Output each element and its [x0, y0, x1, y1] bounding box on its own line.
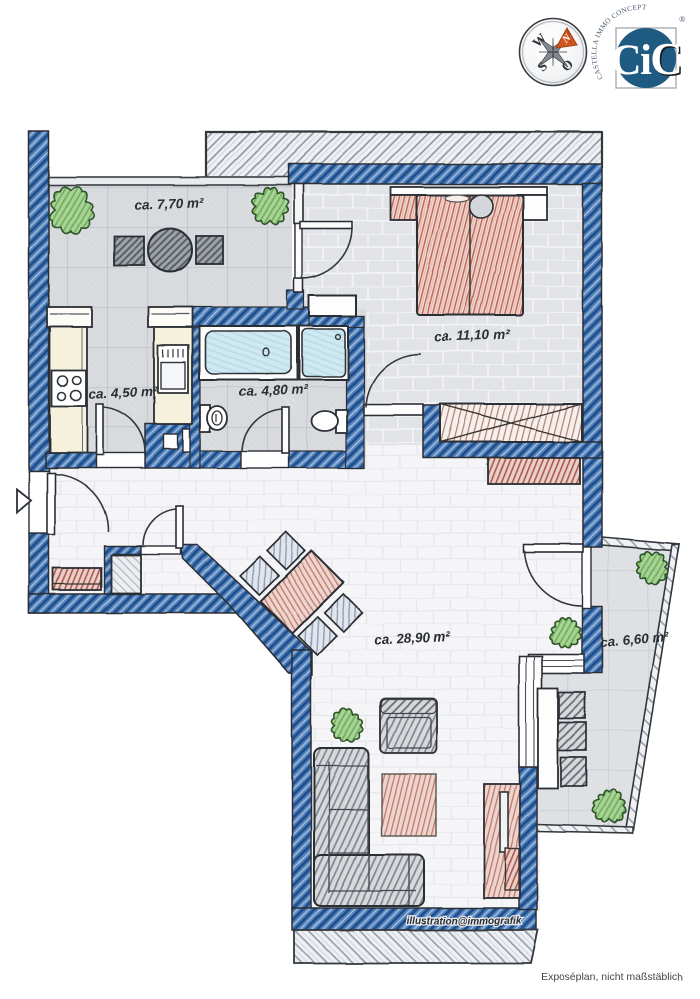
svg-text:®: ®	[679, 14, 686, 24]
svg-text:ca. 4,80 m²: ca. 4,80 m²	[238, 382, 308, 399]
svg-text:C: C	[650, 34, 683, 84]
svg-text:Exposéplan, nicht maßstäblich: Exposéplan, nicht maßstäblich	[541, 971, 684, 983]
svg-text:C: C	[610, 37, 641, 84]
svg-text:ca. 7,70 m²: ca. 7,70 m²	[134, 195, 204, 212]
svg-text:ca. 4,50 m²: ca. 4,50 m²	[88, 384, 158, 401]
svg-text:ca. 11,10 m²: ca. 11,10 m²	[434, 327, 511, 345]
svg-text:illustration@immografik: illustration@immografik	[407, 916, 522, 927]
